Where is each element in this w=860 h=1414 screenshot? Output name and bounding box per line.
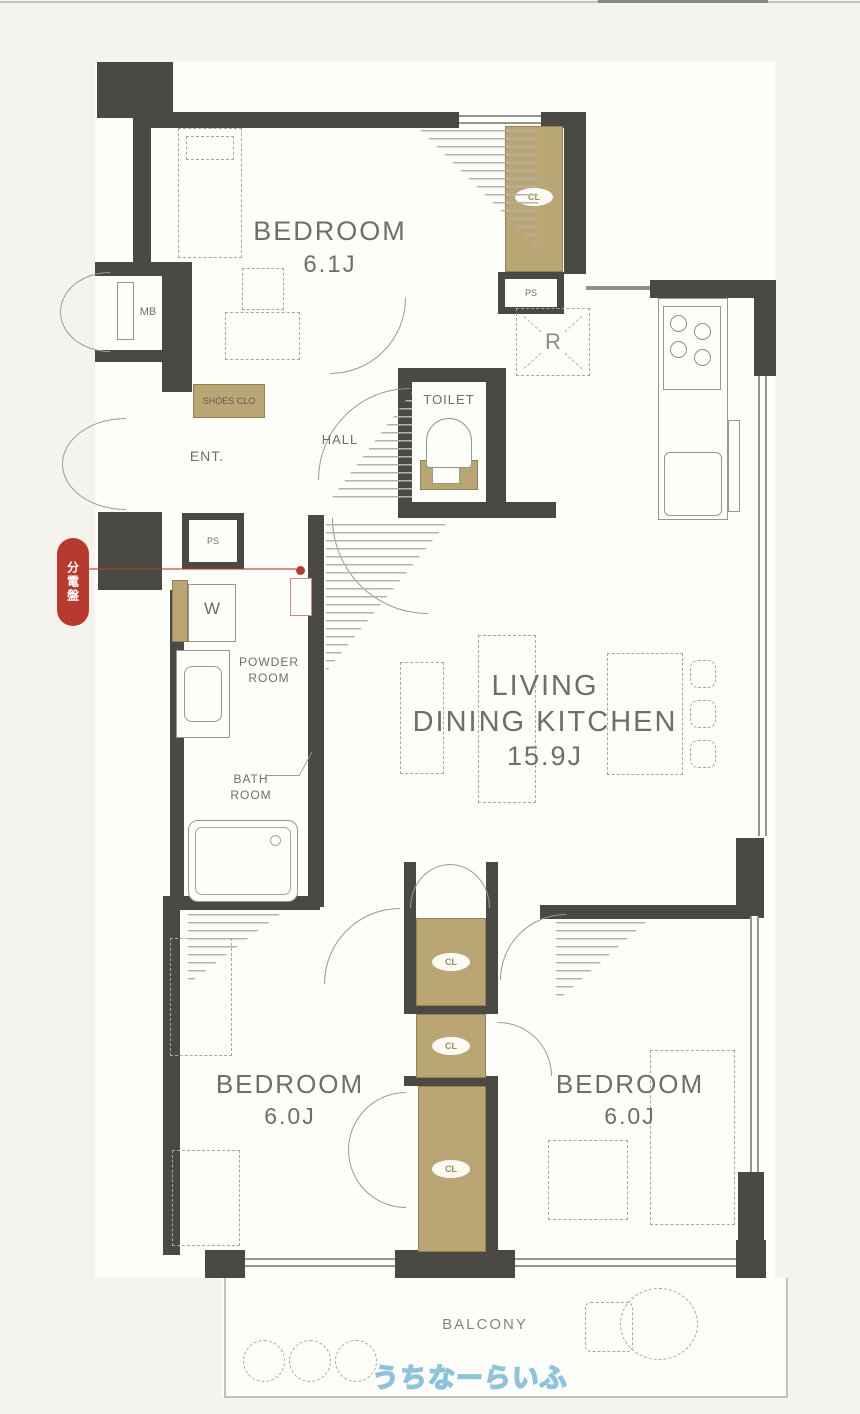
bedroom3-name: BEDROOM — [515, 1068, 745, 1101]
wall-segment — [586, 286, 650, 290]
dining-chair — [690, 740, 716, 768]
balcony-planter — [335, 1340, 377, 1382]
burner — [694, 349, 711, 366]
balcony-label: BALCONY — [420, 1316, 550, 1335]
window — [459, 115, 541, 124]
ps-label: PS — [525, 288, 537, 298]
balcony-planter — [289, 1340, 331, 1382]
wall-segment — [395, 1250, 515, 1278]
bedroom1-name: BEDROOM — [205, 215, 455, 249]
desk-bedroom2 — [172, 1150, 240, 1246]
hall-label: HALL — [305, 432, 375, 448]
powder-room-label1: POWDER — [228, 655, 310, 670]
refrigerator-space: R — [516, 308, 590, 376]
ldk-size: 15.9J — [400, 740, 690, 774]
washer-side-panel — [172, 580, 188, 642]
wall-segment — [133, 112, 459, 128]
floor-plan: CL SHOES CLO CL CL CL PS PS MB R W — [0, 0, 860, 1414]
distribution-board-outline — [290, 578, 312, 616]
bathtub-drain — [270, 835, 281, 846]
ldk-name-line2: DINING KITCHEN — [400, 704, 690, 740]
toilet-label: TOILET — [408, 392, 490, 408]
burner — [670, 315, 687, 332]
bedroom1-size: 6.1J — [205, 250, 455, 280]
ps-label: PS — [207, 536, 219, 546]
washer-label: W — [196, 598, 228, 619]
balcony-chair — [585, 1302, 633, 1352]
window — [663, 1258, 738, 1267]
badge-leader-line — [88, 568, 296, 570]
pillow-bedroom1 — [186, 136, 234, 160]
dining-chair — [690, 700, 716, 728]
distribution-board-dot — [296, 566, 305, 575]
washbasin-bowl — [184, 666, 222, 722]
toilet-bowl — [426, 418, 472, 468]
stove — [663, 306, 721, 390]
balcony-planter — [243, 1340, 285, 1382]
bathtub — [188, 820, 298, 902]
bedroom2-name: BEDROOM — [175, 1068, 405, 1101]
burner — [670, 341, 687, 358]
desk-bedroom3 — [548, 1140, 628, 1220]
refrigerator-label: R — [542, 329, 564, 355]
door-arc-entrance — [62, 464, 126, 510]
desk-bedroom1 — [225, 312, 300, 360]
door-arc-meterbox — [60, 312, 110, 352]
wall-segment — [98, 512, 162, 590]
wall-segment — [486, 1086, 498, 1258]
door-arc-meterbox — [60, 272, 110, 312]
meter-box-unit — [117, 282, 134, 340]
wall-segment — [540, 905, 755, 919]
closet-label: CL — [432, 953, 470, 971]
balcony-edge — [224, 1278, 226, 1398]
pipe-space-mid: PS — [182, 513, 244, 569]
bedroom2-size: 6.0J — [175, 1102, 405, 1131]
wall-segment — [564, 112, 586, 274]
shoes-closet-label: SHOES CLO — [193, 396, 265, 407]
wall-segment — [162, 262, 192, 392]
wall-segment — [308, 515, 324, 907]
bath-room-label1: BATH — [210, 772, 292, 787]
closet-label: CL — [432, 1160, 470, 1178]
burner — [694, 323, 711, 340]
window — [758, 376, 767, 836]
meter-box-label: MB — [134, 306, 162, 320]
wall-segment — [404, 908, 416, 1010]
bath-room-label2: ROOM — [210, 788, 292, 803]
wall-segment — [133, 118, 151, 268]
balcony-edge — [224, 1396, 788, 1398]
bedroom3-size: 6.0J — [515, 1102, 745, 1131]
site-watermark: うちなーらいふ — [371, 1356, 570, 1395]
wall-segment — [97, 62, 173, 118]
distribution-board-badge: 分電盤 — [57, 538, 89, 626]
wall-segment — [205, 1250, 245, 1278]
entrance-label: ENT. — [172, 448, 242, 466]
window — [245, 1258, 395, 1267]
toilet-cistern — [432, 466, 460, 484]
window — [750, 916, 759, 1172]
closet-label: CL — [432, 1037, 470, 1055]
wall-segment — [398, 502, 556, 518]
door-arc-entrance — [62, 418, 126, 464]
counter-side-strip — [728, 420, 740, 512]
top-border-line-dark — [598, 0, 768, 3]
wall-segment — [486, 908, 498, 1010]
dining-chair — [690, 660, 716, 688]
wall-segment — [736, 1240, 766, 1278]
balcony-edge — [786, 1278, 788, 1398]
powder-room-label2: ROOM — [228, 671, 310, 686]
wall-segment — [754, 280, 776, 376]
window — [515, 1258, 663, 1267]
kitchen-sink — [664, 452, 722, 516]
ldk-name-line1: LIVING — [400, 668, 690, 704]
